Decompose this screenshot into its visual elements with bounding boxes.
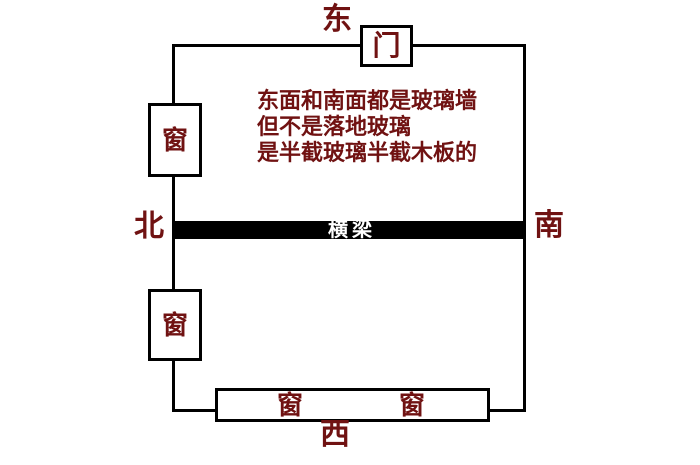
note-line-1: 东面和南面都是玻璃墙 bbox=[257, 88, 477, 114]
window-label-bottom-right: 窗 bbox=[399, 392, 425, 418]
note-text: 东面和南面都是玻璃墙 但不是落地玻璃 是半截玻璃半截木板的 bbox=[257, 88, 477, 166]
window-box-left-bottom: 窗 bbox=[148, 289, 202, 361]
window-label-left-bottom: 窗 bbox=[162, 312, 188, 338]
beam-bar: 横梁 bbox=[175, 221, 525, 239]
note-line-3: 是半截玻璃半截木板的 bbox=[257, 140, 477, 166]
door-box: 门 bbox=[360, 25, 413, 67]
compass-west-label: 西 bbox=[320, 420, 350, 450]
floorplan-diagram: 横梁 门 窗 窗 窗 窗 东 北 南 西 东面和南面都是玻璃墙 但不是落地玻璃 … bbox=[0, 0, 700, 465]
window-box-bottom: 窗 窗 bbox=[215, 388, 490, 422]
window-label-bottom-left: 窗 bbox=[277, 392, 303, 418]
compass-north-label: 北 bbox=[134, 212, 164, 242]
window-box-left-top: 窗 bbox=[148, 103, 202, 177]
beam-label: 横梁 bbox=[328, 221, 376, 239]
door-label: 门 bbox=[372, 32, 400, 60]
note-line-2: 但不是落地玻璃 bbox=[257, 114, 477, 140]
window-label-left-top: 窗 bbox=[162, 127, 188, 153]
compass-south-label: 南 bbox=[534, 211, 564, 241]
compass-east-label: 东 bbox=[322, 5, 352, 35]
